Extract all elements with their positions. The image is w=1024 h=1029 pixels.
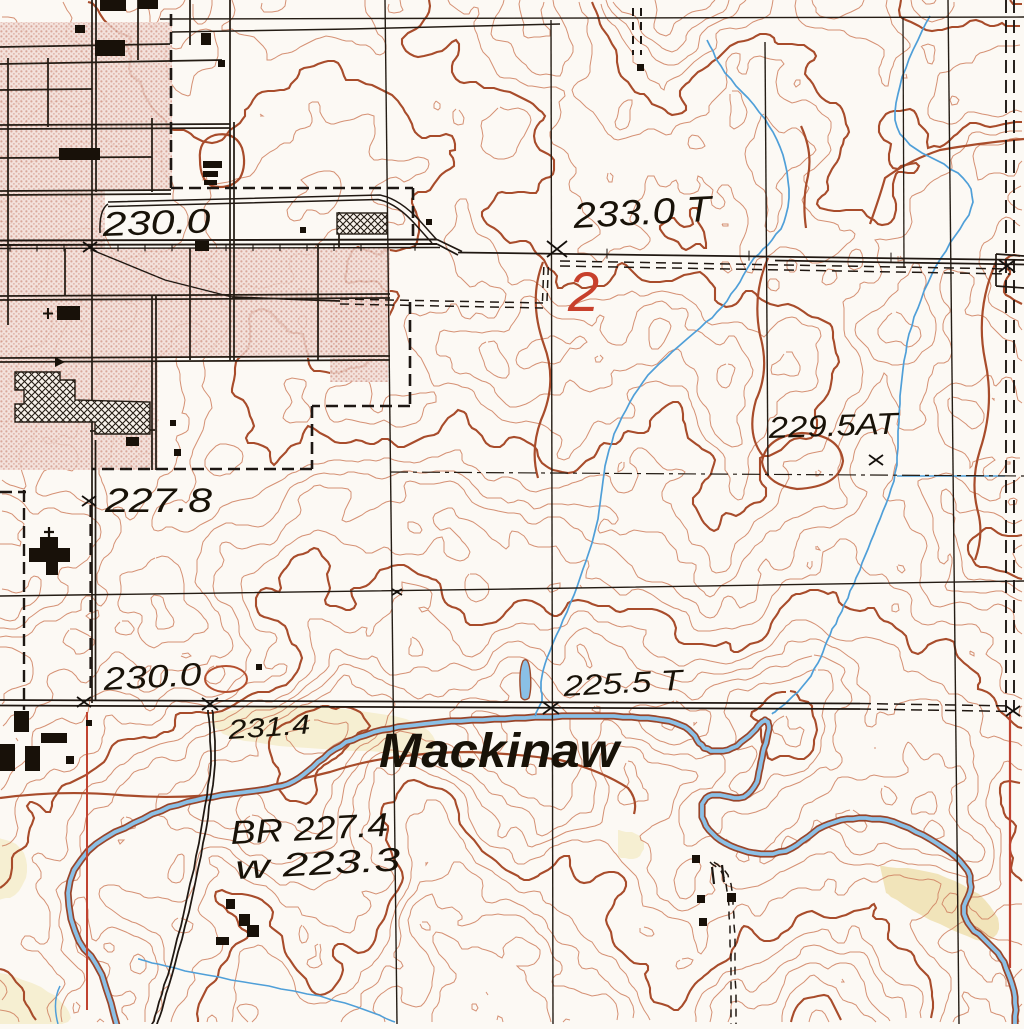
svg-text:227.8: 227.8 [104,482,212,520]
svg-text:229.5AT: 229.5AT [767,407,901,445]
svg-text:230.0: 230.0 [101,202,212,244]
svg-text:230.0: 230.0 [101,656,202,697]
svg-text:225.5 T: 225.5 T [561,665,685,703]
svg-text:233.0 T: 233.0 T [571,188,715,236]
svg-text:Mackinaw: Mackinaw [379,725,622,778]
svg-text:231.4: 231.4 [226,709,311,745]
svg-text:2: 2 [567,260,599,323]
